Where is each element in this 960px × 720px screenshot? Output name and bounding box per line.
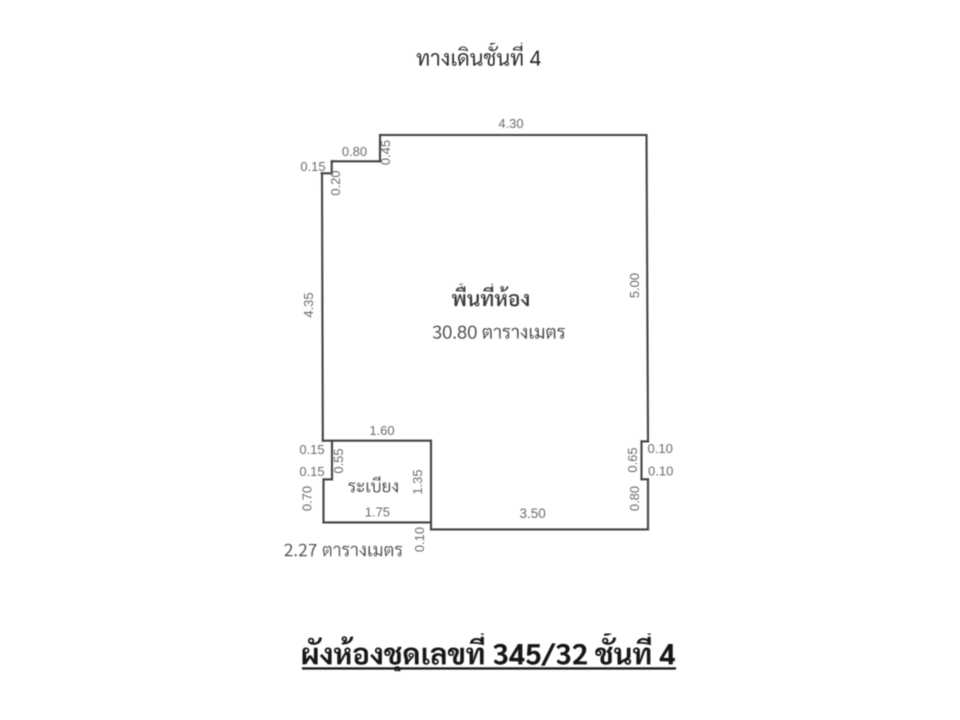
svg-text:4.35: 4.35: [301, 292, 316, 317]
svg-text:0.20: 0.20: [328, 170, 343, 195]
svg-text:0.10: 0.10: [412, 527, 427, 552]
svg-text:5.00: 5.00: [627, 273, 642, 298]
svg-text:1.60: 1.60: [369, 423, 394, 438]
svg-text:3.50: 3.50: [519, 506, 545, 521]
svg-text:0.15: 0.15: [300, 159, 325, 174]
svg-text:0.15: 0.15: [299, 464, 324, 479]
svg-text:0.55: 0.55: [331, 448, 346, 473]
svg-text:0.80: 0.80: [627, 486, 642, 511]
svg-text:0.65: 0.65: [625, 447, 640, 472]
svg-text:0.70: 0.70: [299, 486, 314, 511]
svg-text:1.35: 1.35: [410, 469, 425, 494]
svg-text:0.15: 0.15: [299, 442, 324, 457]
svg-text:0.80: 0.80: [342, 144, 367, 159]
svg-text:1.75: 1.75: [365, 505, 390, 520]
svg-text:0.45: 0.45: [378, 140, 393, 165]
svg-text:0.10: 0.10: [648, 441, 673, 456]
svg-text:0.10: 0.10: [648, 464, 673, 479]
svg-text:4.30: 4.30: [498, 116, 523, 131]
